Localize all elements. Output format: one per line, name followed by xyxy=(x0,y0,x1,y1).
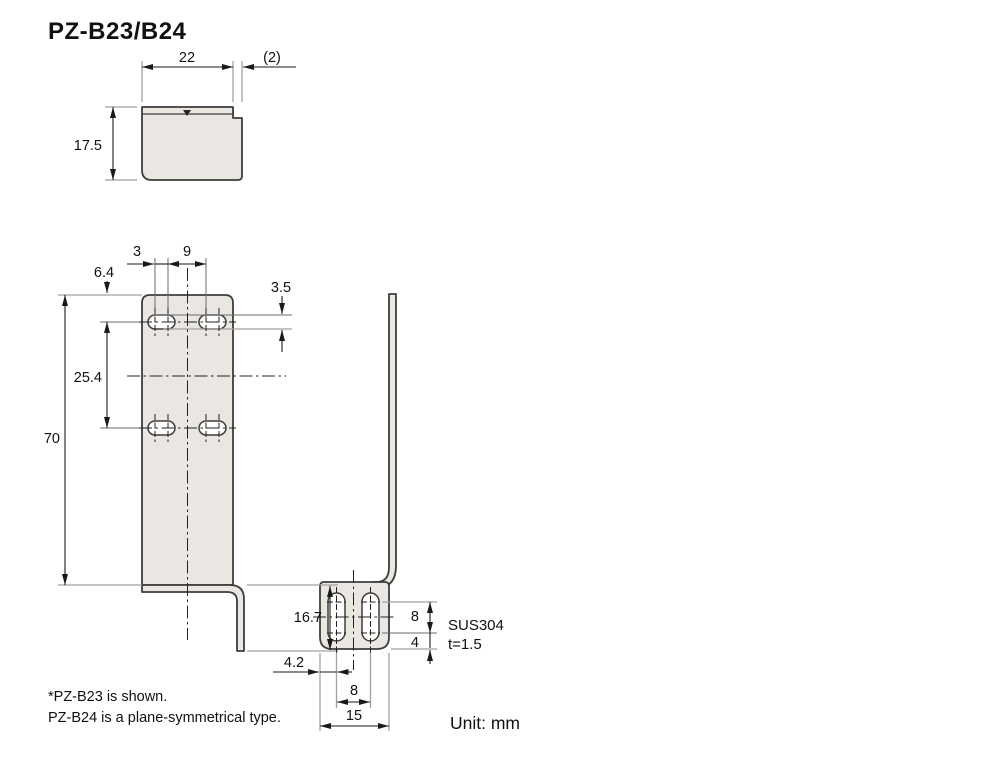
dim-hole-top-offset-label: 6.4 xyxy=(94,265,114,281)
front-view xyxy=(142,295,244,651)
dim-top-depth-label: 17.5 xyxy=(74,138,102,154)
dim-total-height-label: 70 xyxy=(44,431,60,447)
side-view-plate-edge xyxy=(373,294,396,589)
side-view xyxy=(373,294,396,589)
dim-top-step-label: (2) xyxy=(263,50,281,66)
dim-foot-slot-length-label: 8 xyxy=(411,609,419,625)
note-line-2: PZ-B24 is a plane-symmetrical type. xyxy=(48,710,281,726)
note-line-1: *PZ-B23 is shown. xyxy=(48,689,167,705)
dim-foot-edge-margin-label: 4 xyxy=(411,635,419,651)
unit-label: Unit: mm xyxy=(450,713,520,733)
dim-foot-width-label: 15 xyxy=(346,708,362,724)
dim-row-pitch-label: 25.4 xyxy=(74,370,102,386)
dim-slot-gap-label: 9 xyxy=(183,244,191,260)
front-view-bottom-lip xyxy=(142,585,244,651)
material-label: SUS304 xyxy=(448,617,504,634)
thickness-label: t=1.5 xyxy=(448,636,482,653)
top-view-body xyxy=(142,107,242,180)
dim-lip-height-label: 16.7 xyxy=(294,610,322,626)
dim-slot-height-label: 3.5 xyxy=(271,280,291,296)
dim-slot-arc-pitch-label: 3 xyxy=(133,244,141,260)
top-view xyxy=(142,107,242,180)
page-title: PZ-B23/B24 xyxy=(48,18,187,45)
dim-foot-slot-pitch-label: 8 xyxy=(350,683,358,699)
dim-foot-slot-offset-label: 4.2 xyxy=(284,655,304,671)
catalog-dimension-page: PZ-B23/B24 22 (2) 17.5 3 9 6.4 3.5 25.4 … xyxy=(0,0,1001,766)
technical-drawing: PZ-B23/B24 22 (2) 17.5 3 9 6.4 3.5 25.4 … xyxy=(0,0,1001,766)
dim-top-width-label: 22 xyxy=(179,50,195,66)
